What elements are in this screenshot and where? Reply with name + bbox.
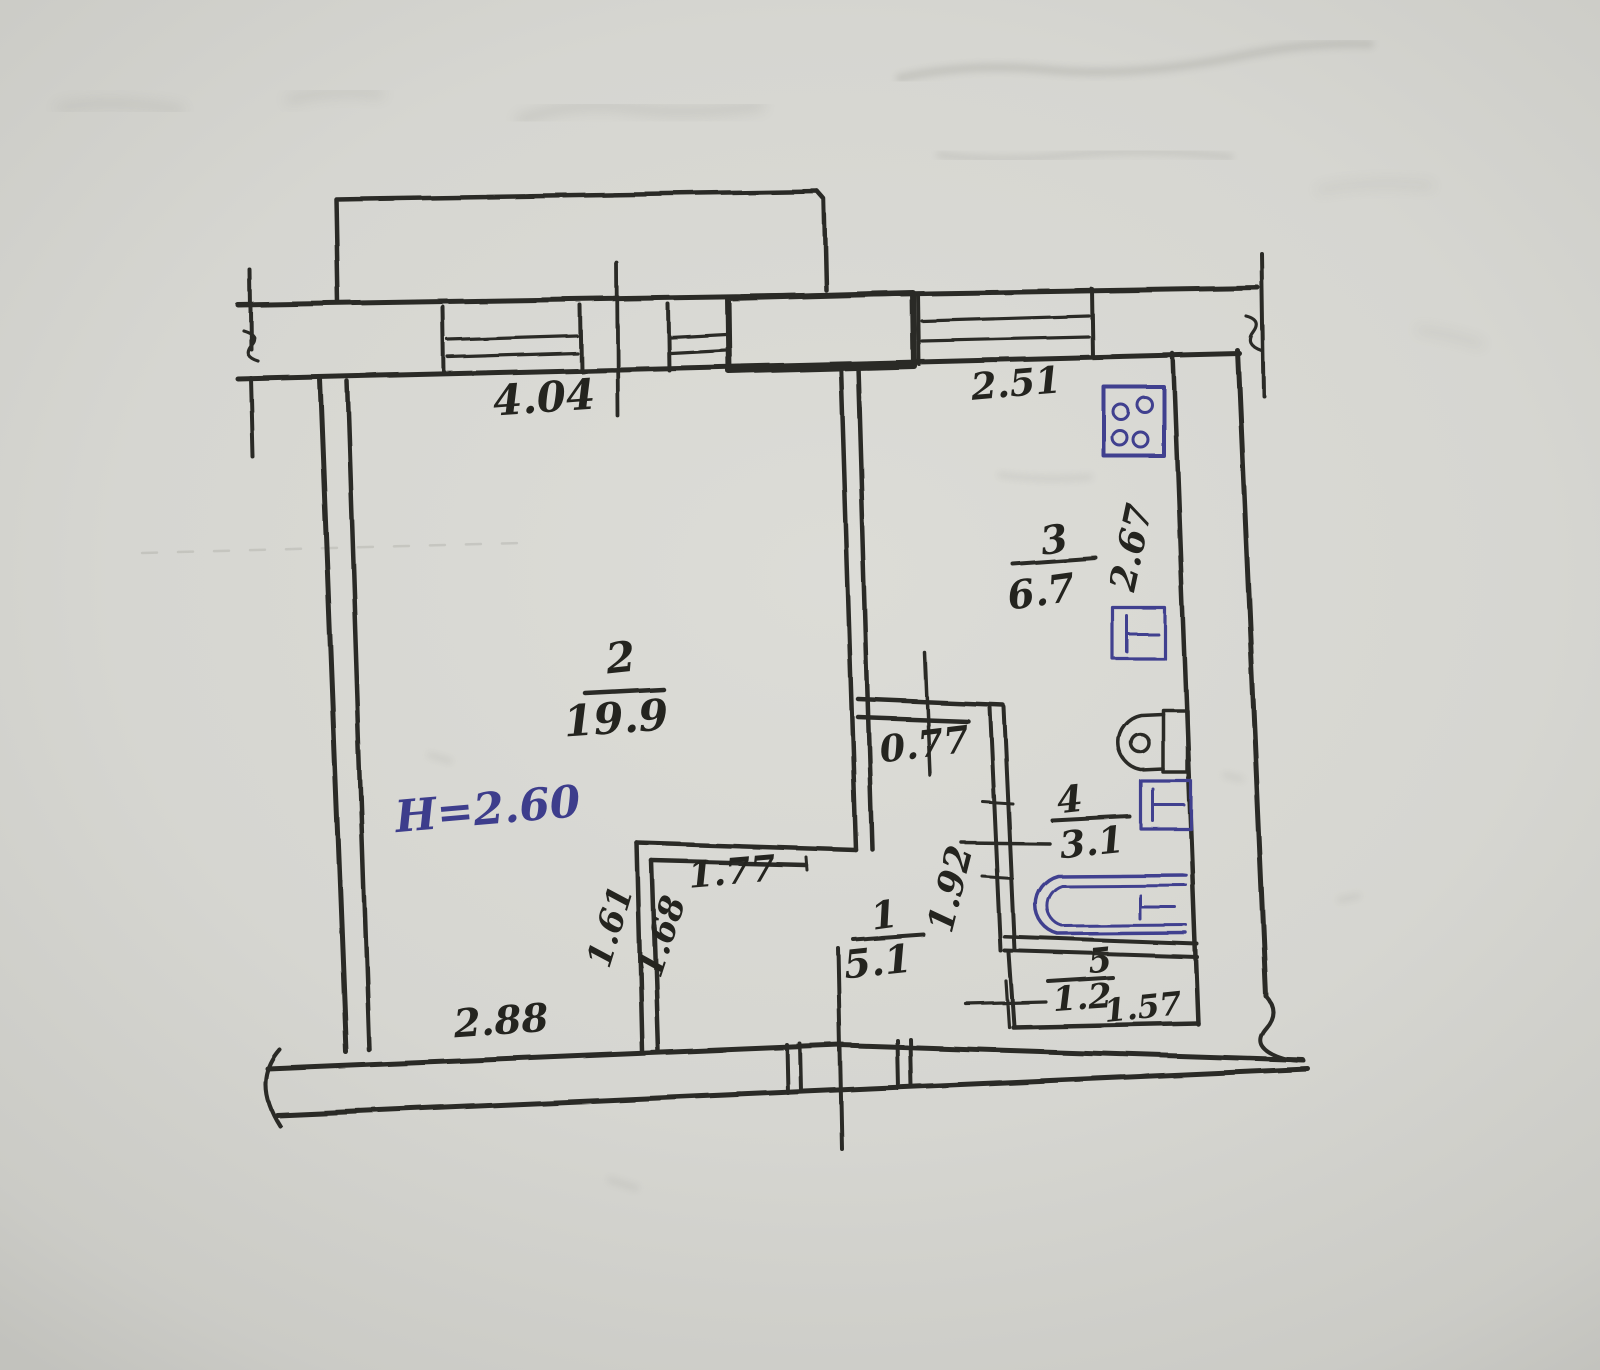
smudge-mark — [430, 475, 1358, 1188]
window-living-room — [443, 305, 581, 373]
smudge-mark — [520, 106, 760, 120]
window-jambs — [918, 289, 1093, 364]
tick-top-left — [250, 270, 253, 457]
room-bathroom-number: 4 — [1055, 776, 1085, 822]
exterior-left-wall — [320, 379, 369, 1052]
dim-closet-width: 1.57 — [1102, 984, 1183, 1030]
wall-living-kitchen-west — [841, 367, 856, 850]
room-kitchen-number: 3 — [1038, 515, 1071, 564]
wall-break-squiggle — [1260, 996, 1304, 1061]
wall-bathroom-west-outer — [990, 707, 1001, 951]
window-sill-lines — [448, 336, 577, 357]
balcony-outline — [336, 191, 826, 303]
stove-icon — [1104, 387, 1164, 456]
room-bathroom-area: 3.1 — [1057, 817, 1126, 867]
bleed-through-marks — [60, 44, 1480, 1188]
bathtub-icon — [1036, 875, 1186, 934]
wall-line-inner — [347, 381, 369, 1050]
wall-living-kitchen-east — [858, 367, 872, 849]
room-kitchen-area: 6.7 — [1004, 565, 1078, 620]
dim-line-closet — [966, 981, 1046, 1027]
wall-line-outer — [1238, 351, 1266, 996]
wall-line-outer — [320, 379, 346, 1052]
window-jamb — [668, 304, 669, 370]
room-closet-area: 1.2 — [1051, 976, 1113, 1020]
exterior-right-wall — [1173, 351, 1304, 1061]
kitchen-sink-icon — [1113, 608, 1165, 659]
exterior-bottom-wall — [266, 948, 1308, 1149]
dimension-axis-line — [617, 263, 618, 416]
squiggle-top-left — [243, 330, 258, 361]
balcony-door-pier — [728, 293, 914, 371]
dim-line-bathroom — [962, 843, 1050, 844]
wall-line-outer — [277, 1069, 1308, 1115]
window-balcony-side — [668, 304, 726, 370]
wall-line-inner — [238, 354, 1240, 379]
labels: 4.04 2.51 2.67 0.77 1.92 1.77 1.61 1.68 … — [391, 357, 1184, 1047]
washbasin-icon — [1141, 781, 1191, 829]
smudge-mark — [60, 92, 380, 110]
dim-kitchen-doorway: 0.77 — [877, 717, 972, 772]
tick-top-right — [1262, 254, 1264, 396]
balcony-wall — [817, 191, 826, 290]
smudge-mark — [900, 44, 1370, 78]
door-jamb-tick — [806, 857, 807, 870]
room-living-number: 2 — [602, 632, 637, 684]
squiggle-top-right — [1247, 317, 1262, 351]
entrance-axis-line — [838, 948, 842, 1149]
door-jamb — [787, 1044, 801, 1093]
dim-hall-depth: 1.92 — [919, 841, 981, 936]
dim-kitchen-window: 2.51 — [968, 357, 1063, 409]
wall-line-inner — [1173, 354, 1198, 1024]
smudge-mark — [1320, 184, 1480, 344]
floor-plan-scan: 4.04 2.51 2.67 0.77 1.92 1.77 1.61 1.68 … — [0, 0, 1600, 1370]
dim-living-window: 4.04 — [491, 370, 596, 426]
smudge-mark — [940, 151, 1230, 159]
window-sill-lines — [922, 316, 1089, 341]
window-sill-lines — [671, 334, 726, 353]
room-hallway-number: 1 — [868, 891, 900, 939]
dim-kitchen-depth: 2.67 — [1101, 500, 1161, 595]
dim-niche-width: 1.77 — [686, 847, 777, 896]
window-kitchen — [918, 289, 1093, 364]
balcony-wall — [336, 191, 817, 303]
dim-niche-left: 1.61 — [579, 881, 641, 972]
toilet-icon — [1118, 710, 1187, 772]
pencil-dashed-line — [142, 543, 520, 553]
wall-kitchen-hall-upper — [858, 699, 1003, 705]
room-hallway-area: 5.1 — [841, 936, 913, 989]
interior-walls — [637, 367, 1198, 1051]
fixtures-black — [1118, 710, 1187, 772]
room-living-area: 19.9 — [562, 690, 670, 747]
wall-bathroom-west-inner — [1004, 707, 1015, 951]
dim-bottom-left: 2.88 — [451, 995, 550, 1048]
ceiling-height-note: H=2.60 — [391, 776, 583, 843]
floor-plan-canvas: 4.04 2.51 2.67 0.77 1.92 1.77 1.61 1.68 … — [0, 0, 1600, 1370]
